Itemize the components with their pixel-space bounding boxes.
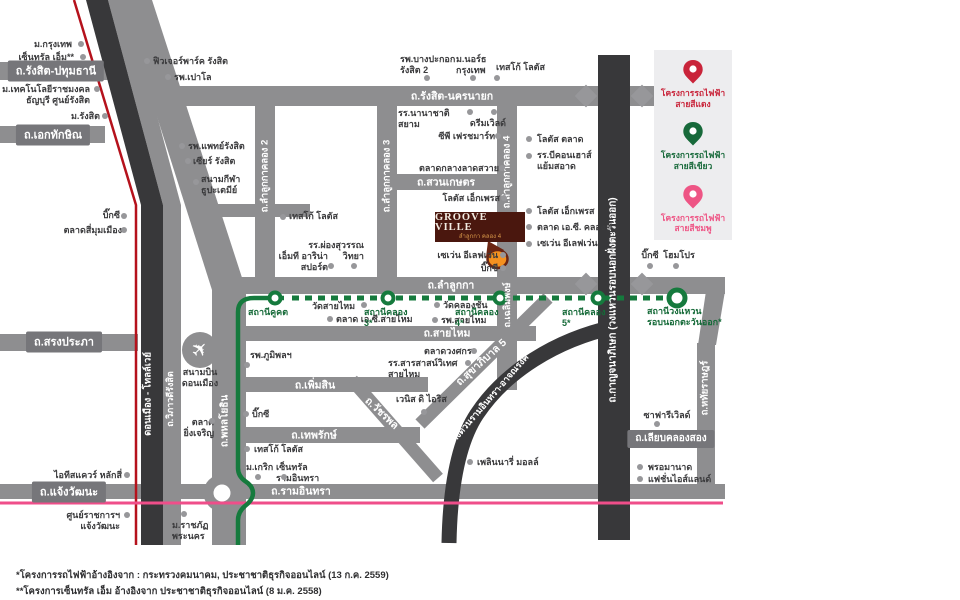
groove-ville-logo: GROOVE VILLE ลำลูกกา คลอง 4 (435, 212, 525, 242)
poi-dot (495, 133, 501, 139)
poi-dot (500, 252, 506, 258)
station-label: สถานีคลอง 3* (364, 307, 418, 329)
station-label: สถานีคลอง 4* (455, 307, 509, 329)
road-label: ถ.ลำลูกกาคลอง 3 (380, 140, 395, 213)
poi-dot (526, 241, 532, 247)
poi-label: ซาฟารีเวิลด์ (638, 410, 696, 421)
poi-dot (124, 512, 130, 518)
poi-dot (280, 214, 286, 220)
poi-dot (467, 109, 473, 115)
poi-label: สนามกีฬา ธูปะเตมีย์ (201, 174, 261, 196)
poi-dot (494, 75, 500, 81)
poi-dot (121, 227, 127, 233)
footnote-1: *โครงการรถไฟฟ้าอ้างอิงจาก : กระทรวงคมนาค… (16, 568, 389, 583)
station-outer-ring (669, 290, 685, 306)
rail-line-legend: โครงการรถไฟฟ้า สายสีแดงโครงการรถไฟฟ้า สา… (654, 50, 732, 240)
road-label: ถ.เอกทักษิณ (16, 125, 90, 146)
poi-label: เซเว่น อีเลฟเว่น (537, 238, 607, 249)
poi-label: เทสโก้ โลตัส (496, 62, 558, 73)
road-label: ถ.รังสิต-นครนายก (411, 88, 493, 105)
poi-dot (78, 41, 84, 47)
poi-label: ฟิวเจอร์พาร์ค รังสิต (153, 56, 245, 67)
poi-label: เซเว่น อีเลฟเว่น (434, 250, 498, 261)
footnote-2: **โครงการเซ็นทรัล เอ็ม อ้างอิงจาก ประชาช… (16, 584, 322, 599)
road-label: ถ.เพิ่มสิน (295, 377, 335, 394)
station-label: สถานีคลอง 5* (562, 307, 616, 329)
poi-label: ตลาดกลางลาดสวาย (405, 163, 499, 174)
poi-label: รพ.เปาโล (174, 72, 234, 83)
road-label: ถ.เทพรักษ์ (291, 427, 337, 444)
poi-label: ศูนย์ราชการฯ แจ้งวัฒนะ (32, 510, 120, 532)
poi-label: ตลาดวงศกร (424, 346, 474, 357)
road-label: ถ.พหลโยธิน (218, 395, 233, 447)
poi-label: ม.ราชภัฏ พระนคร (172, 520, 214, 542)
poi-dot (80, 54, 86, 60)
logo-title: GROOVE VILLE (435, 213, 525, 234)
poi-dot (432, 317, 438, 323)
legend-label: โครงการรถไฟฟ้า สายสีชมพู (661, 213, 725, 234)
poi-dot (255, 474, 261, 480)
poi-label: บิ๊กซี (252, 409, 282, 420)
poi-label: รพ.ภูมิพลฯ (250, 350, 305, 361)
poi-dot (181, 511, 187, 517)
poi-label: เซียร์ รังสิต (193, 156, 263, 167)
poi-dot (179, 143, 185, 149)
poi-dot (647, 263, 653, 269)
legend-item-pink-line-project: โครงการรถไฟฟ้า สายสีชมพู (656, 183, 730, 234)
airplane-icon: ✈ (187, 337, 213, 363)
poi-dot (328, 263, 334, 269)
poi-label: เซ็นทรัล รามอินทรา (276, 462, 350, 484)
poi-label: เพลินนารี่ มอลล์ (477, 457, 541, 468)
poi-dot (124, 472, 130, 478)
poi-dot (470, 75, 476, 81)
poi-dot (526, 153, 532, 159)
road-label: ถ.สรงประภา (26, 332, 102, 353)
road-label: ถ.ลำลูกกา (428, 277, 475, 294)
poi-label: เวนิส ดิ ไอริส (396, 394, 448, 405)
poi-dot (281, 474, 287, 480)
poi-dot (94, 86, 100, 92)
road-label: ดอนเมือง - โทลล์เวย์ (141, 352, 156, 436)
poi-dot (500, 265, 506, 271)
poi-dot (327, 316, 333, 322)
poi-label: รร.บีคอนเฮาส์ แย้มสอาด (537, 150, 601, 172)
location-map: ✈ โครงการรถไฟฟ้า สายสีแดงโครงการรถไฟฟ้า … (0, 0, 960, 600)
poi-label: รร.สารสาสน์วิเทศ สายไหม (388, 358, 466, 380)
poi-label: ม.เทคโนโลยีราชมงคล ธัญบุรี ศูนย์รังสิต (2, 84, 90, 106)
road-label: ถ.รามอินทรา (271, 483, 331, 500)
poi-label: ตลาดสี่มุมเมือง (52, 225, 122, 236)
poi-dot (209, 418, 215, 424)
poi-label: เอ็มที อาริน่า สปอร์ต (270, 251, 328, 273)
poi-label: วัดสายไหม (312, 301, 362, 312)
poi-dot (501, 195, 507, 201)
poi-dot (421, 409, 427, 415)
poi-label: รพ.บางปะกอก รังสิต 2 (400, 54, 458, 76)
poi-dot (244, 446, 250, 452)
poi-label: โลตัส ตลาด (537, 134, 592, 145)
legend-item-red-line-project: โครงการรถไฟฟ้า สายสีแดง (656, 58, 730, 109)
station-label: สถานีคูคต (248, 307, 294, 318)
poi-dot (526, 208, 532, 214)
map-pin-icon (681, 58, 705, 85)
poi-dot (471, 348, 477, 354)
poi-dot (434, 302, 440, 308)
poi-label: โฮมโปร (658, 250, 700, 261)
poi-label: ม.นอร์ธ กรุงเทพ (456, 54, 500, 76)
legend-item-green-line-project: โครงการรถไฟฟ้า สายสีเขียว (656, 120, 730, 171)
poi-dot (526, 136, 532, 142)
poi-label: เทสโก้ โลตัส (254, 444, 316, 455)
poi-label: สนามบิน ดอนเมือง (172, 367, 228, 389)
poi-dot (193, 179, 199, 185)
road-label: ถ.เลียบคลองสอง (627, 430, 714, 448)
poi-dot (424, 75, 430, 81)
poi-label: เซ็นทรัล เอ็ม** (2, 52, 74, 63)
road-label: ถ.รังสิต-ปทุมธานี (8, 61, 104, 82)
road-label: ถ.สวนเกษตร (417, 174, 475, 191)
poi-label: ดรีมเวิลด์ (460, 118, 506, 129)
poi-label: แฟชั่นไอส์แลนด์ (648, 474, 716, 485)
station-khlong3 (383, 293, 394, 304)
station-khukhot (270, 293, 281, 304)
poi-label: บิ๊กซี (88, 210, 120, 221)
logo-subtitle: ลำลูกกา คลอง 4 (459, 234, 501, 242)
poi-dot (673, 263, 679, 269)
don-mueang-airport-icon: ✈ (182, 332, 218, 368)
road-label: ถ.หทัยราษฎร์ (698, 361, 713, 416)
poi-dot (465, 360, 471, 366)
poi-dot (351, 263, 357, 269)
poi-dot (526, 224, 532, 230)
poi-label: ม.รังสิต (55, 111, 100, 122)
poi-dot (243, 411, 249, 417)
legend-label: โครงการรถไฟฟ้า สายสีแดง (661, 88, 725, 109)
poi-label: รพ.แพทย์รังสิต (188, 141, 270, 152)
poi-dot (244, 362, 250, 368)
poi-label: พรอมานาด (648, 462, 702, 473)
poi-label: ซีพี เฟรชมาร์ท (425, 131, 495, 142)
poi-dot (165, 74, 171, 80)
map-pin-icon (681, 120, 705, 147)
poi-label: รร.นานาชาติสยาม (398, 108, 464, 130)
poi-dot (467, 459, 473, 465)
poi-dot (637, 476, 643, 482)
legend-label: โครงการรถไฟฟ้า สายสีเขียว (661, 150, 725, 171)
poi-label: เทสโก้ โลตัส (289, 211, 351, 222)
road-label: ถ.แจ้งวัฒนะ (32, 482, 106, 503)
poi-dot (185, 158, 191, 164)
map-pin-icon (681, 183, 705, 210)
station-label: สถานีวงแหวน รอบนอกตะวันออก* (647, 306, 723, 328)
station-khlong5 (593, 293, 604, 304)
poi-dot (654, 421, 660, 427)
poi-dot (499, 165, 505, 171)
poi-label: บิ๊กซี (464, 263, 498, 274)
poi-dot (121, 213, 127, 219)
poi-dot (491, 109, 497, 115)
poi-label: ม.กรุงเทพ (10, 39, 72, 50)
poi-label: ไอทีสแควร์ หลักสี่ (52, 470, 122, 481)
poi-dot (144, 58, 150, 64)
poi-dot (102, 113, 108, 119)
poi-label: โลตัส เอ็กเพรส (440, 193, 500, 204)
poi-dot (637, 464, 643, 470)
poi-label: ตลาด เอ.ซี. คลอง 4 (537, 222, 615, 233)
poi-label: โลตัส เอ็กเพรส (537, 206, 601, 217)
